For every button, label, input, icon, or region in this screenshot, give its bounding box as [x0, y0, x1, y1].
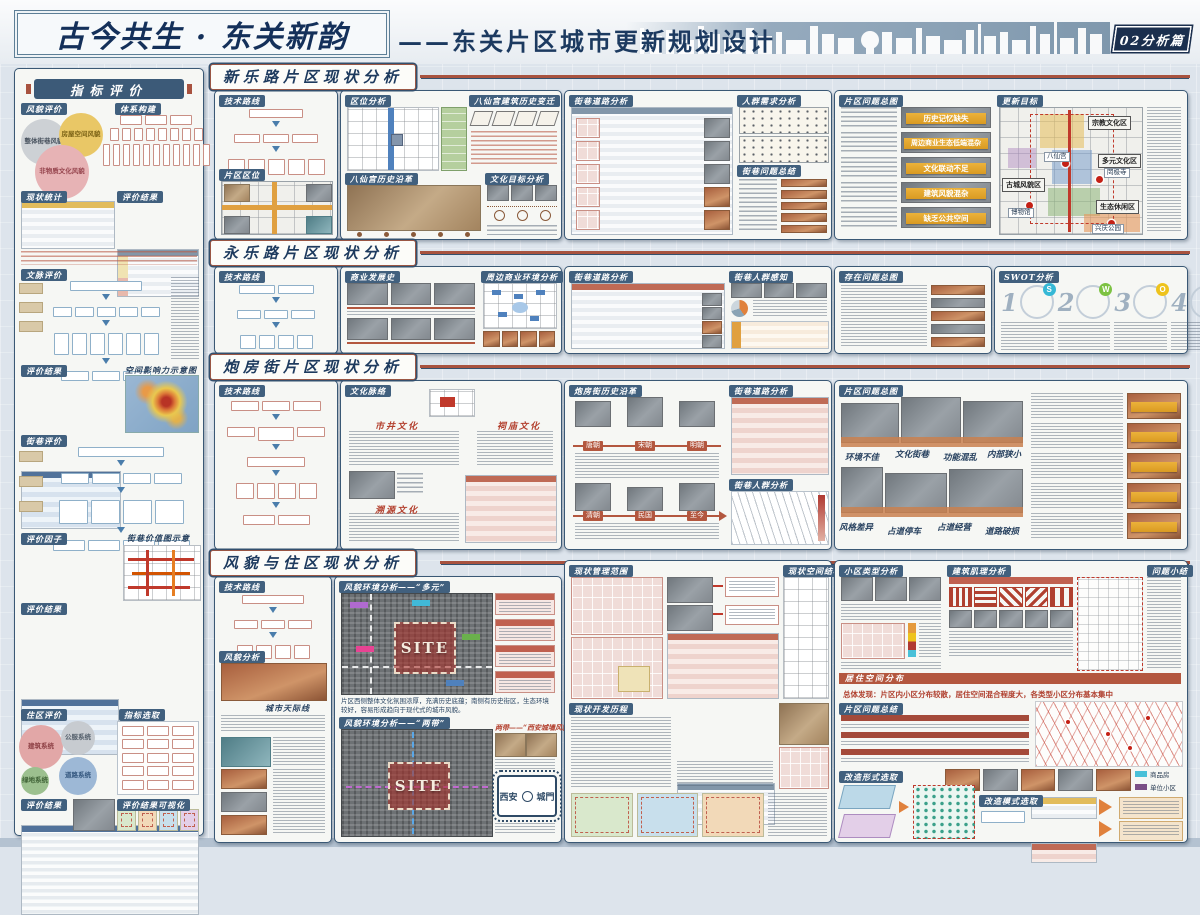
commerce-block	[530, 316, 539, 321]
satellite-strip-1	[667, 577, 713, 603]
roundel-seal-icon	[522, 791, 533, 802]
swot-number: 1	[1001, 288, 1018, 317]
tag-band3-yange: 炮房街历史沿革	[569, 385, 642, 397]
band1-street-analysis-card: 街巷道路分析 人群需求分析 街巷问题总结	[564, 90, 832, 240]
era-chip: 至今	[687, 511, 707, 521]
zone-label: 生态休闲区	[1096, 200, 1139, 214]
tag-zhibiao-xuanqu: 指标选取	[119, 709, 165, 721]
sankey-scale-bar	[818, 495, 825, 541]
tag-band4-jili: 建筑肌理分析	[947, 565, 1011, 577]
environment-description: 片区西侧整体文化氛围浓厚，充满历史底蕴；南侧有历史街区，生态环境较好，容易形成趋…	[341, 697, 555, 715]
zone-label: 宗教文化区	[1088, 116, 1131, 130]
mode-result-box-1	[1119, 797, 1183, 819]
swot-letter: O	[1156, 283, 1169, 296]
development-history-text	[571, 717, 671, 787]
timeline-dots	[347, 232, 479, 237]
value-street-4	[146, 550, 149, 596]
environment-note-panels	[495, 593, 555, 693]
map-chip-purple	[350, 602, 368, 608]
band1-context-card: 区位分析 八仙宫建筑历史变迁 八仙宫历史沿革 文化目标分析	[340, 90, 562, 240]
site-highlight	[440, 397, 455, 407]
spatial-influence-heatmap	[125, 375, 199, 433]
collage-label: 占道停车	[887, 525, 921, 537]
band1-analysis-map	[347, 107, 439, 171]
band4-environment-card: 风貌环境分析——“多元” SITE 片区西侧整体文化氛围浓厚，充满历史底蕴；南侧…	[334, 576, 562, 843]
street-photo	[704, 187, 730, 207]
satellite-map-2: SITE	[341, 729, 493, 837]
heatmap-title: 空间影响力示意图	[125, 365, 197, 376]
evolution-notes	[471, 131, 557, 167]
tag-band2-wenti: 存在问题总图	[839, 271, 903, 283]
swot-columns: 1 S 2 W 3 O 4	[1001, 285, 1181, 352]
era-photo	[575, 483, 611, 511]
boundary-map-2	[571, 637, 663, 699]
sidebar-indicator-panel: 指标评价 风貌评价 整体街巷风貌 房屋空间风貌 非物质文化风貌 体系构建 现状统…	[14, 68, 204, 836]
era-chip: 宋朝	[635, 441, 655, 451]
culture-title-suyuan: 溯源文化	[375, 503, 419, 516]
zone-label: 古城风貌区	[1002, 178, 1045, 192]
landmark-label: 兴庆公园	[1092, 224, 1124, 234]
era-photo	[627, 487, 663, 511]
tag-band3-daolu: 街巷道路分析	[729, 385, 793, 397]
location-photo	[224, 184, 250, 202]
problem-banner: 建筑风貌混杂	[906, 188, 986, 199]
temple-evolution-diagrams	[471, 111, 557, 126]
problem-photos	[931, 285, 985, 347]
tag-band1-jishu: 技术路线	[219, 95, 265, 107]
band2-header-line	[420, 251, 1190, 254]
dashed-road-v	[370, 594, 372, 694]
collage-ground-strip	[841, 507, 1023, 517]
style-text-2	[273, 769, 325, 835]
location-photo	[224, 216, 250, 234]
tag-band3-wenmai: 文化脉络	[345, 385, 391, 397]
perception-donut-chart	[731, 300, 748, 317]
street-flow-level-chips	[19, 451, 43, 521]
landmark-dot	[1096, 176, 1103, 183]
commerce-block	[492, 290, 501, 295]
tag-tixi-goujian: 体系构建	[115, 103, 161, 115]
tag-band1-mubiao: 更新目标	[997, 95, 1043, 107]
sidebar-header: 指标评价	[70, 80, 148, 99]
table-footnote-text	[21, 251, 197, 265]
tag-pingjia-jieguo-3: 评价结果	[21, 603, 67, 615]
history-map-thumb-1	[779, 703, 829, 745]
tag-keshihua: 评价结果可视化	[117, 799, 190, 811]
band2-header: 永乐路片区现状分析	[210, 240, 416, 266]
tag-band4-jishu: 技术路线	[219, 581, 265, 593]
street-photo	[702, 335, 722, 348]
commerce-environment-map	[483, 283, 557, 329]
era-chip: 明朝	[687, 441, 707, 451]
swot-letter: W	[1099, 283, 1112, 296]
poster-subtitle: ——东关片区城市更新规划设计	[398, 22, 776, 57]
skyline-subtitle: 城市天际线	[265, 703, 310, 714]
rank-color-column	[732, 322, 741, 348]
crowd-sankey-diagram	[731, 491, 829, 545]
culture-note-text	[171, 277, 199, 361]
collage-label: 文化街巷	[895, 448, 929, 460]
street-problem-text	[739, 179, 777, 233]
perception-photos	[731, 283, 827, 298]
problem-banner-rows	[841, 715, 1029, 765]
band2-tech-route-card: 技术路线	[214, 266, 338, 354]
band1-header-line	[420, 75, 1190, 78]
renovation-detail-map	[913, 785, 975, 839]
road-ew	[222, 205, 332, 210]
site-marker-2: SITE	[388, 762, 450, 810]
map-chip-green	[462, 634, 480, 640]
swot-threat: 4 T	[1171, 285, 1200, 352]
problem-banner: 缺乏公共空间	[906, 213, 986, 224]
style-photo-column	[221, 769, 267, 835]
calligraphy-placeholder	[397, 473, 423, 495]
street-value-map	[123, 545, 201, 601]
culture-title-shijing: 市井文化	[375, 419, 419, 432]
temple-history-collage	[347, 185, 481, 231]
annotation-arrow-2	[713, 613, 723, 615]
band1-tech-flow	[223, 109, 329, 175]
building-texture-panel	[949, 577, 1073, 669]
band4-residence-card: 小区类型分析 建筑肌理分析	[834, 560, 1188, 843]
circle-public-service-system: 公服系统	[61, 721, 95, 755]
tag-band2-daolu: 街巷道路分析	[569, 271, 633, 283]
street-photo	[702, 321, 722, 334]
problem-banner: 周边商业生态低端混杂	[904, 138, 988, 149]
summary-text	[1147, 577, 1181, 669]
tag-band2-jishu: 技术路线	[219, 271, 265, 283]
tag-band1-wenti: 街巷问题总结	[737, 165, 801, 177]
landmark-label: 博物馆	[1008, 208, 1034, 218]
result-strip-image	[73, 799, 115, 831]
system-org-chart	[113, 115, 199, 166]
wall-caption	[495, 759, 555, 769]
map-chip-blue	[446, 680, 464, 686]
circle-road-system: 道路系统	[59, 757, 97, 795]
style-evaluation-circles: 整体街巷风貌 房屋空间风貌 非物质文化风貌	[19, 113, 113, 191]
location-photo	[306, 184, 332, 202]
orange-arrow-icon	[1099, 799, 1120, 815]
commerce-history-grid	[347, 283, 475, 347]
era-chip: 民国	[635, 511, 655, 521]
culture-minimap	[429, 389, 475, 417]
tag-band2-swot: SWOT分析	[999, 271, 1059, 283]
era-photo	[679, 483, 715, 511]
swot-number: 3	[1114, 288, 1131, 317]
band1-problem-rows: 历史记忆缺失 周边商业生态低端混杂 文化联动不足 建筑风貌混杂 缺乏公共空间	[841, 107, 991, 233]
tag-band4-moshi: 改造模式选取	[979, 795, 1043, 807]
band4-tech-flow	[221, 595, 325, 659]
crowd-need-sketch-1	[739, 107, 829, 134]
header-accent-right	[187, 84, 192, 94]
tag-band4-xiaoqu: 小区类型分析	[839, 565, 903, 577]
tag-band1-quweifx: 区位分析	[345, 95, 391, 107]
evaluation-result-big-table	[21, 825, 199, 915]
circle-building-system: 建筑系统	[19, 725, 63, 769]
perception-notes	[753, 300, 827, 317]
mode-select-box	[981, 811, 1025, 823]
tag-band4-fengmao: 风貌分析	[219, 651, 265, 663]
tag-zhuqu-pingjia: 住区评价	[21, 709, 67, 721]
tag-band4-liangdai: 风貌环境分析——“两带”	[339, 717, 450, 729]
collage-label: 功能混乱	[943, 451, 977, 463]
band1-problems-goal-card: 片区问题总图 历史记忆缺失 周边商业生态低端混杂 文化联动不足 建筑风貌混杂 缺…	[834, 90, 1188, 240]
shijing-text	[349, 431, 459, 465]
simiao-text	[477, 431, 553, 465]
flow-level-chips	[19, 283, 43, 353]
renovation-form-maps	[841, 785, 895, 837]
xian-gate-roundel: 西安 城門	[497, 775, 557, 817]
renewal-goal-map: 宗教文化区 多元文化区 生态休闲区 古城风貌区 八仙宫 博物馆 罔极寺 兴庆公园	[999, 107, 1143, 235]
street-photo	[704, 118, 730, 138]
collage-label: 占道经营	[937, 521, 971, 533]
problem-text-rows	[1031, 393, 1181, 543]
band3-header-line	[420, 365, 1190, 368]
perception-rank-list	[731, 321, 829, 349]
band4-status-card: 现状管理范围 现状空间结构 现状开发历程	[564, 560, 832, 843]
street-photo	[704, 141, 730, 161]
swot-weakness: 2 W	[1058, 285, 1111, 352]
sidebar-header-bar: 指标评价	[34, 79, 184, 99]
band4-header: 风貌与住区现状分析	[210, 550, 416, 576]
residence-distribution-band: 居住空间分布	[839, 673, 1181, 684]
era-photo	[575, 401, 611, 427]
status-statistics-table	[21, 201, 115, 249]
tag-xianzhuang-tongji: 现状统计	[21, 191, 67, 203]
problem-paragraphs	[841, 285, 927, 347]
band2-swot-card: SWOT分析 1 S 2 W 3 O	[994, 266, 1188, 354]
site-marker: SITE	[394, 622, 456, 674]
band2-commerce-card: 商业发展史 周边商业环境分析	[340, 266, 562, 354]
band3-history-card: 炮房街历史沿革 唐朝 宋朝 明朝 清朝 民国 至今 街巷道路分析 街巷人群分析	[564, 380, 832, 550]
tag-band2-zhoubian: 周边商业环境分析	[481, 271, 563, 283]
green-plan-strip	[441, 107, 467, 171]
tag-pingjia-jieguo-2: 评价结果	[21, 365, 67, 377]
tag-band4-duoyuan: 风貌环境分析——“多元”	[339, 581, 450, 593]
band3-street-table	[731, 397, 829, 475]
community-population-table	[667, 633, 779, 699]
era-notes-2	[575, 523, 719, 541]
tag-band1-daolu: 街巷道路分析	[569, 95, 633, 107]
header-accent-left	[26, 84, 31, 94]
collage-label: 风格差异	[839, 521, 873, 533]
tag-band3-jishu: 技术路线	[219, 385, 265, 397]
tag-band1-renqun: 人群需求分析	[737, 95, 801, 107]
orange-arrow-icon	[1099, 821, 1120, 837]
tag-band1-yange: 八仙宫历史沿革	[345, 173, 418, 185]
era-chip: 清朝	[583, 511, 603, 521]
residence-distribution-title: 居住空间分布	[845, 673, 905, 684]
problem-banner: 文化联动不足	[906, 163, 986, 174]
circle-green-system: 绿地系统	[21, 767, 49, 795]
zone-label: 多元文化区	[1098, 154, 1141, 168]
band3-culture-card: 文化脉络 市井文化 祠庙文化 溯源文化	[340, 380, 562, 550]
collage-ground-strip	[841, 437, 1023, 447]
boundary-map-1	[571, 577, 663, 635]
problem-banner: 历史记忆缺失	[906, 113, 986, 124]
value-street-1	[128, 558, 194, 561]
site-block	[391, 134, 403, 146]
street-map-thumb	[576, 118, 600, 138]
street-map-thumb	[576, 164, 600, 184]
main-axis-line	[1068, 110, 1071, 232]
boundary-subzone	[618, 666, 650, 692]
swot-opportunity: 3 O	[1114, 285, 1167, 352]
spatial-structure-map	[783, 577, 829, 699]
value-street-2	[132, 572, 190, 575]
street-photo	[704, 164, 730, 184]
landmark-label: 罔极寺	[1104, 168, 1130, 178]
location-photo	[306, 216, 332, 234]
street-map-thumb	[576, 187, 600, 207]
suyuan-text	[349, 513, 459, 541]
tag-band1-wenhua: 文化目标分析	[485, 173, 549, 185]
tag-band1-quwei: 片区区位	[219, 169, 265, 181]
band3-problems-card: 片区问题总图 环境不佳 文化街巷 功能混乱 内部狭小 风格差异 占道停车 占道经…	[834, 380, 1188, 550]
residence-axonometric	[1035, 701, 1183, 767]
axono-dot	[1146, 716, 1150, 720]
history-map-thumb-2	[779, 747, 829, 789]
era-photo	[627, 397, 663, 427]
era-chip: 唐朝	[583, 441, 603, 451]
commerce-block	[536, 290, 545, 295]
tag-band4-guanli: 现状管理范围	[569, 565, 633, 577]
tag-pingjia-jieguo-1: 评价结果	[117, 191, 163, 203]
culture-summary-table	[465, 475, 557, 543]
band1-location-map	[221, 181, 333, 235]
city-skyline-photo	[221, 663, 327, 701]
problem-collage-2	[841, 465, 1023, 517]
culture-title-simiao: 祠庙文化	[497, 419, 541, 432]
community-type-panel	[841, 577, 941, 669]
style-text-1	[273, 737, 325, 765]
style-photo-teal	[221, 737, 271, 767]
mode-table-pink	[1031, 843, 1097, 863]
axono-dot	[1106, 732, 1110, 736]
culture-photo	[349, 471, 395, 499]
tag-band1-bianqian: 八仙宫建筑历史变迁	[469, 95, 560, 107]
value-street-3	[128, 586, 190, 589]
tag-jiexiang-pingjia: 街巷评价	[21, 435, 67, 447]
street-photo	[702, 293, 722, 306]
tag-band4-xingshi: 改造形式选取	[839, 771, 903, 783]
band3-header: 炮房街片区现状分析	[210, 354, 416, 380]
street-photo	[704, 210, 730, 230]
swot-strength: 1 S	[1001, 285, 1054, 352]
band2-street-card: 街巷道路分析 街巷人群感知	[564, 266, 832, 354]
tag-band3-renqun: 街巷人群分析	[729, 479, 793, 491]
band2-street-table	[571, 283, 725, 349]
band3-tech-route-card: 技术路线	[214, 380, 338, 550]
era-photo	[679, 401, 715, 427]
skyline-text	[221, 715, 325, 733]
tag-pingjia-yinzi: 评价因子	[21, 533, 67, 545]
collage-label: 道路破损	[985, 525, 1019, 537]
goal-note-text	[1147, 107, 1181, 233]
tag-band4-xiaojie: 问题小结	[1147, 565, 1193, 577]
collage-label: 环境不佳	[845, 451, 879, 463]
axono-dot	[1066, 720, 1070, 724]
annotation-box-2	[725, 605, 779, 625]
band2-tech-flow	[223, 285, 329, 349]
residence-finding: 总体发现：片区内小区分布较散，居住空间混合程度大，各类型小区分布基本集中	[843, 689, 1113, 700]
crowd-need-sketch-2	[739, 136, 829, 163]
section-badge: 02分析篇	[1112, 26, 1192, 52]
road-ns	[272, 182, 277, 234]
poster-title-box: 古今共生 · 东关新韵	[14, 10, 390, 58]
collage-label: 内部狭小	[987, 448, 1021, 460]
band1-header: 新乐路片区现状分析	[210, 64, 416, 90]
legend-label: 商品房	[1150, 769, 1170, 779]
street-history-timeline: 唐朝 宋朝 明朝 清朝 民国 至今	[571, 397, 723, 543]
roundel-right: 城門	[537, 790, 555, 803]
value-street-5	[172, 550, 175, 596]
roundel-caption	[495, 823, 555, 835]
poster-title: 古今共生 · 东关新韵	[55, 12, 348, 56]
band2-problems-card: 存在问题总图	[834, 266, 992, 354]
annotation-box-1	[725, 577, 779, 597]
figure-ground-map	[1077, 577, 1143, 671]
satellite-map-1: SITE	[341, 593, 493, 695]
commerce-photo-strip	[483, 331, 555, 347]
map-chip-cyan	[412, 600, 430, 606]
band3-tech-flow	[223, 401, 329, 525]
annotation-arrow-1	[713, 585, 723, 587]
wall-photo-2	[526, 733, 557, 757]
swot-number: 2	[1058, 288, 1075, 317]
development-history-notes	[677, 761, 773, 787]
satellite-strip-2	[667, 605, 713, 631]
band1-street-road-table	[571, 107, 733, 235]
axono-dot	[1128, 746, 1132, 750]
commerce-block	[498, 312, 507, 317]
swot-letter: S	[1043, 283, 1056, 296]
mode-result-box-2	[1119, 821, 1183, 841]
swot-number: 4	[1171, 288, 1188, 317]
band1-tech-route-card: 技术路线 片区区位	[214, 90, 338, 240]
tag-fengmao-pingjia: 风貌评价	[21, 103, 67, 115]
map-chip-pink	[356, 646, 374, 652]
legend-label: 单位小区	[1150, 782, 1176, 792]
visualization-mini-maps	[117, 809, 199, 831]
section-badge-label: 02分析篇	[1119, 30, 1185, 49]
street-value-map-title: 街巷价值图示意	[127, 533, 190, 544]
tag-wenmai-pingjia: 文脉评价	[21, 269, 67, 281]
era-notes-1	[575, 453, 719, 479]
problem-photo-strips	[781, 179, 827, 233]
wall-photo-1	[495, 733, 526, 757]
status-plan-thumbnails	[571, 793, 827, 837]
roundel-left: 西安	[499, 790, 517, 803]
band4-tech-style-card: 技术路线 风貌分析 城市天际线	[214, 576, 332, 843]
lake-shape	[512, 302, 528, 313]
residence-evaluation-circles: 建筑系统 公服系统 绿地系统 道路系统	[19, 721, 113, 795]
tag-band1-zongtu: 片区问题总图	[839, 95, 903, 107]
tag-pingjia-jieguo-4: 评价结果	[21, 799, 67, 811]
commerce-block	[514, 294, 523, 299]
landmark-label: 八仙宫	[1044, 152, 1070, 162]
culture-target-timeline	[487, 185, 557, 233]
tag-band2-shangye: 商业发展史	[345, 271, 400, 283]
tag-band2-ganzhi: 街巷人群感知	[729, 271, 793, 283]
tag-band4-licheng: 现状开发历程	[569, 703, 633, 715]
street-photo	[702, 307, 722, 320]
tag-band4-zongjie: 片区问题总结	[839, 703, 903, 715]
indicator-selection-panel	[117, 721, 199, 795]
tag-band3-zongtu: 片区问题总图	[839, 385, 903, 397]
street-map-thumb	[576, 141, 600, 161]
street-map-thumb	[576, 210, 600, 230]
